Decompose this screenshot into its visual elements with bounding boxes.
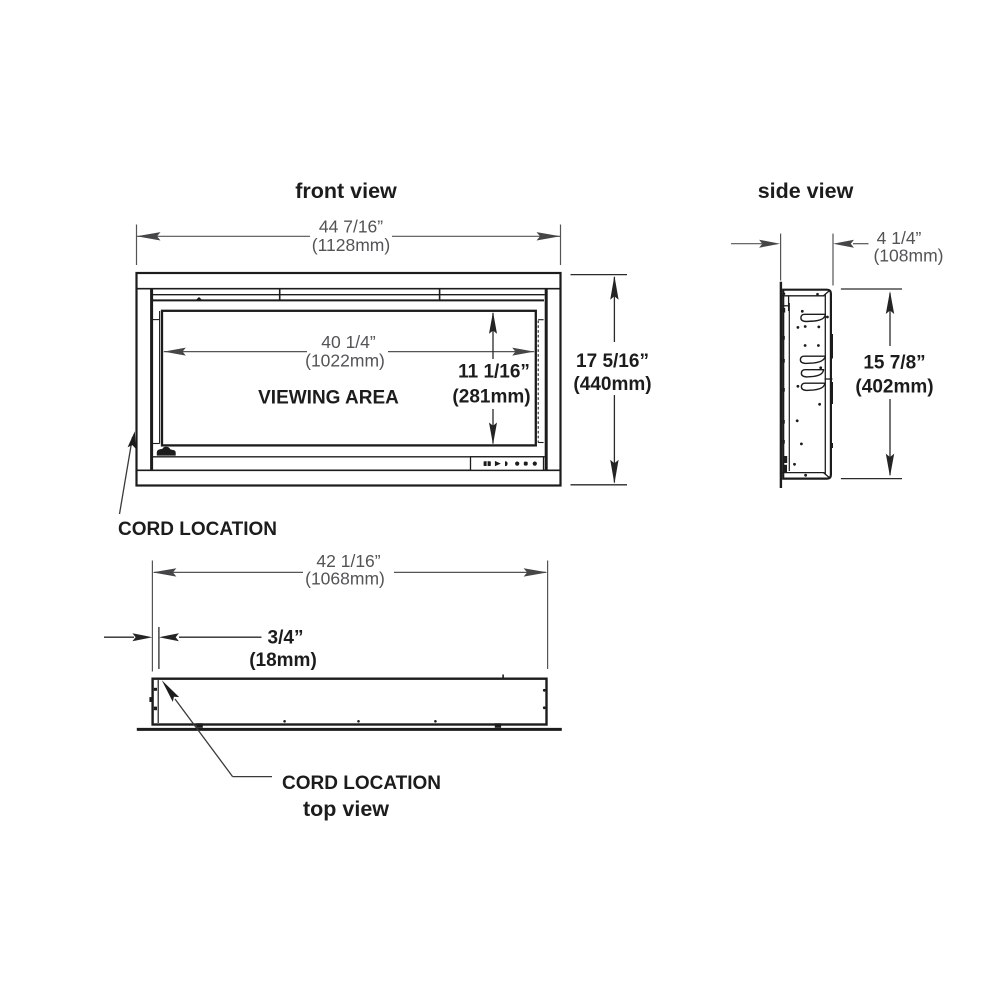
svg-text:(1022mm): (1022mm) <box>305 350 385 370</box>
svg-text:CORD LOCATION: CORD LOCATION <box>118 519 277 540</box>
svg-text:top view: top view <box>303 797 389 821</box>
svg-text:40 1/4”: 40 1/4” <box>321 332 376 352</box>
svg-text:(18mm): (18mm) <box>249 650 317 671</box>
svg-text:(1128mm): (1128mm) <box>312 235 390 255</box>
svg-text:(1068mm): (1068mm) <box>305 569 385 589</box>
svg-text:17 5/16”: 17 5/16” <box>576 351 649 372</box>
svg-text:44 7/16”: 44 7/16” <box>319 217 383 237</box>
svg-text:side view: side view <box>758 179 854 203</box>
svg-text:front view: front view <box>295 179 397 203</box>
svg-text:(440mm): (440mm) <box>573 374 651 395</box>
svg-text:(281mm): (281mm) <box>452 387 530 408</box>
svg-text:(108mm): (108mm) <box>873 246 943 266</box>
svg-text:11 1/16”: 11 1/16” <box>458 362 530 383</box>
svg-text:(402mm): (402mm) <box>855 377 933 398</box>
svg-text:15 7/8”: 15 7/8” <box>863 353 925 374</box>
svg-text:VIEWING AREA: VIEWING AREA <box>258 388 399 409</box>
svg-text:3/4”: 3/4” <box>268 627 304 648</box>
svg-text:CORD LOCATION: CORD LOCATION <box>282 773 441 794</box>
